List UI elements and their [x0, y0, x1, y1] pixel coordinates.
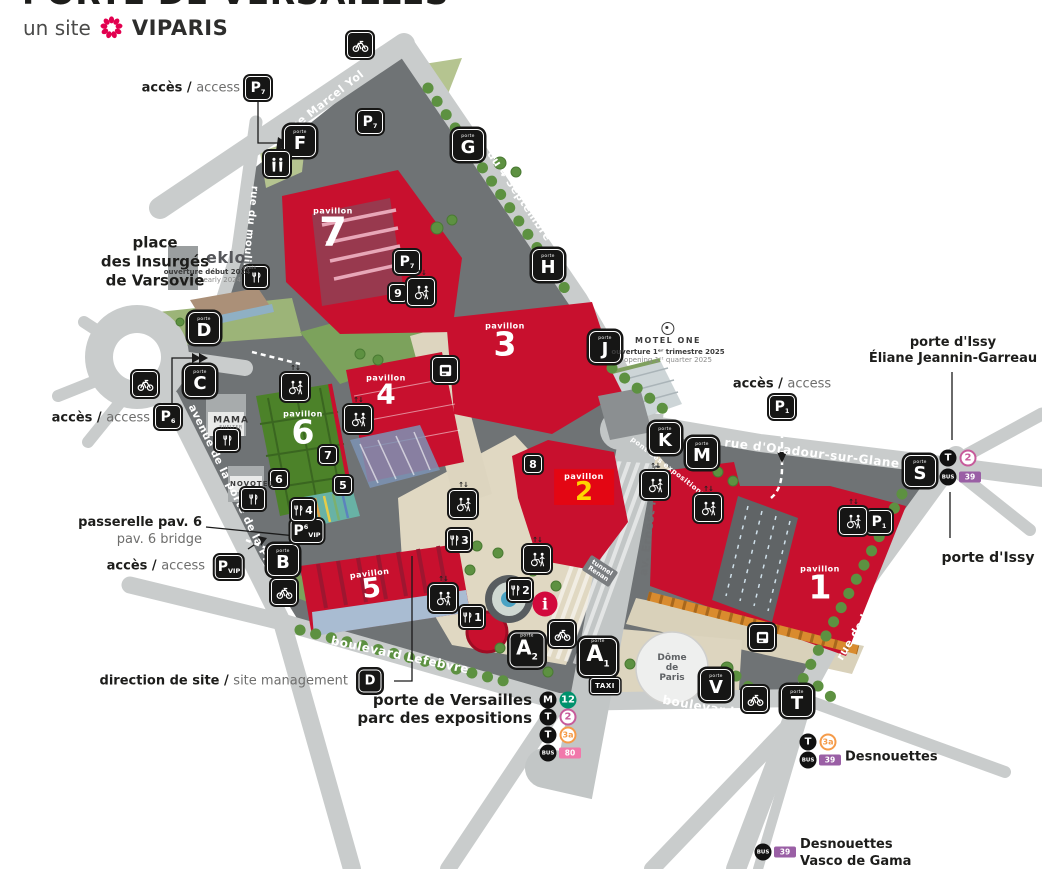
bike-icon	[352, 37, 369, 54]
gate-letter: A	[516, 636, 531, 660]
site-prefix-label: un site	[23, 16, 91, 40]
tram-mode-icon[interactable]: T	[800, 734, 817, 751]
viparis-flower-icon	[98, 14, 125, 41]
parking-sub: 6	[171, 417, 176, 425]
restaurant-4-badge[interactable]: 4	[291, 499, 315, 521]
restaurant-number: 3	[461, 534, 469, 547]
pavilion-number: 1	[800, 573, 840, 601]
direction-bold: direction de site /	[100, 674, 229, 689]
hotel-subname: SHELTER	[213, 426, 249, 431]
site-management-label: direction de site / site management	[100, 674, 348, 689]
wheelchair-person-icon	[529, 551, 546, 568]
pedestrians-icon	[269, 156, 286, 173]
parking-sub: 7	[410, 262, 415, 270]
bus-mode-icon[interactable]: BUS	[800, 752, 817, 769]
hotel-name: MOTEL ONE	[611, 336, 724, 345]
station-line1: porte d'Issy	[869, 335, 1037, 351]
mama-shelter-label: MAMA SHELTER	[213, 416, 249, 431]
elevator-icon: ↑↓	[523, 545, 551, 573]
opening-en: opening 1ˢᵗ quarter 2025	[611, 356, 724, 364]
pavilion-number: 5	[350, 576, 392, 604]
annex-8-badge[interactable]: 8	[524, 455, 542, 473]
elevator-icon: ↑↓	[449, 490, 477, 518]
atm-icon	[749, 624, 775, 650]
gate-letter: S	[914, 466, 927, 482]
tram-mode-icon[interactable]: T	[940, 450, 957, 467]
parking-letter: P	[218, 559, 228, 575]
parking-sub: 7	[261, 88, 266, 96]
fork-knife-icon	[293, 504, 304, 517]
direction-regular: site management	[233, 674, 348, 689]
station-line2: Éliane Jeannin-Garreau	[869, 351, 1037, 367]
access-label-p7: accès / access	[142, 81, 240, 96]
parking-sub: 1	[785, 407, 790, 415]
tram-line-3a-badge[interactable]: 3a	[820, 734, 837, 751]
brand-row: un site VIPARIS	[23, 14, 228, 41]
pavilion-number: 7	[313, 216, 353, 250]
fork-knife-icon	[449, 534, 460, 547]
gate-letter: F	[294, 136, 306, 152]
restaurant-number: 2	[522, 584, 530, 597]
bus-line-80-badge[interactable]: 80	[559, 748, 581, 759]
gate-letter-sub: 1	[603, 660, 609, 670]
gate-letter: G	[461, 140, 476, 156]
wheelchair-person-icon	[455, 496, 472, 513]
motel-one-label: MOTEL ONE ouverture 1ᵉʳ trimestre 2025 o…	[611, 322, 724, 364]
elevator-icon: ↑↓	[281, 373, 309, 401]
access-label-p6: accès / access	[52, 411, 150, 426]
dome-de-paris-label: Dôme de Paris	[657, 653, 686, 683]
annex-9-badge[interactable]: 9	[389, 284, 407, 302]
gate-letter: H	[540, 260, 555, 276]
restaurant-novotel-badge[interactable]	[241, 488, 265, 510]
cash-machine-icon	[437, 362, 454, 379]
pavilion-number: 4	[366, 383, 406, 407]
parking-P6VIP-badge[interactable]: P6VIP	[290, 519, 323, 543]
opening-fr: ouverture 1ᵉʳ trimestre 2025	[611, 348, 724, 356]
bike-parking-icon	[742, 686, 768, 712]
access-regular: access	[161, 559, 205, 574]
bus-line-39-badge[interactable]: 39	[774, 847, 796, 858]
passerelle-label: passerelle pav. 6 pav. 6 bridge	[78, 514, 202, 548]
hotel-name: MAMA	[213, 416, 249, 426]
wheelchair-person-icon	[287, 379, 304, 396]
tram-line-2-badge[interactable]: 2	[560, 709, 577, 726]
gate-letter: D	[197, 323, 212, 339]
taxi-stand-badge[interactable]: TAXI	[590, 678, 620, 694]
page-title: PORTE DE VERSAILLES	[22, 0, 449, 12]
pavilion-7-label: pavillon 7	[313, 207, 353, 250]
tram-mode-icon[interactable]: T	[540, 727, 557, 744]
gate-letter: M	[693, 448, 711, 464]
bike-parking-icon	[132, 371, 158, 397]
porte-de-versailles-map: PORTE DE VERSAILLES un site VIPARIS rue …	[0, 0, 1042, 869]
gate-letter: J	[602, 342, 609, 358]
parking-sub: 7	[373, 122, 378, 130]
elevator-icon: ↑↓	[641, 471, 669, 499]
pavilion-3-label: pavillon 3	[485, 321, 525, 358]
cash-machine-icon	[754, 629, 771, 646]
desnouettes-station-label: Desnouettes	[845, 750, 938, 765]
dome-line3: Paris	[657, 673, 686, 683]
parking-letter: P	[293, 523, 303, 539]
access-bold: accès /	[733, 377, 783, 392]
parking-P1-pavilion-badge[interactable]: P1	[866, 510, 892, 534]
parking-letter: P	[161, 409, 171, 425]
wheelchair-person-icon	[350, 411, 367, 428]
pavilion-5-label: pavillon 5	[349, 567, 392, 604]
wheelchair-person-icon	[435, 590, 452, 607]
gate-letter: C	[193, 376, 206, 392]
pavilion-number: 2	[564, 481, 604, 503]
dome-line2: de	[657, 663, 686, 673]
tram-line-2-badge[interactable]: 2	[960, 450, 977, 467]
porte-d-issy-station-label: porte d'Issy Éliane Jeannin-Garreau	[869, 335, 1037, 367]
gate-letter: T	[791, 696, 803, 712]
restaurant-2-badge[interactable]: 2	[508, 579, 532, 601]
passerelle-line1: passerelle pav. 6	[78, 514, 202, 531]
pedestrian-access-icon	[264, 151, 290, 177]
station-line1: porte de Versailles	[357, 691, 532, 709]
parking-P7-lot-badge[interactable]: P7	[357, 110, 383, 134]
station-line2: parc des expositions	[357, 709, 532, 727]
pavilion-number: 3	[485, 330, 525, 358]
access-regular: access	[196, 81, 240, 96]
bike-parking-icon	[549, 621, 575, 647]
pavilion-4-label: pavillon 4	[366, 374, 406, 407]
fork-knife-icon	[510, 584, 521, 597]
gate-A2[interactable]: porteA2	[510, 633, 545, 668]
parking-letter: P	[872, 514, 882, 530]
gate-M[interactable]: porteM	[686, 437, 718, 469]
parking-P6-badge[interactable]: P6	[155, 405, 181, 429]
access-regular: access	[106, 411, 150, 426]
pavilion-number: 6	[283, 418, 323, 446]
wheelchair-person-icon	[845, 513, 862, 530]
porte-de-versailles-station-label: porte de Versailles parc des expositions	[357, 691, 532, 727]
motel-one-logo-icon	[661, 322, 674, 335]
access-label-pvip: accès / access	[107, 559, 205, 574]
gate-V[interactable]: porteV	[700, 669, 732, 701]
fork-knife-icon	[248, 493, 259, 506]
place-line3: de Varsovie	[101, 272, 209, 291]
annex-5-badge[interactable]: 5	[334, 476, 352, 494]
information-point-badge[interactable]: i	[533, 592, 558, 617]
gate-S[interactable]: porteS	[904, 455, 936, 487]
restaurant-number: 4	[305, 504, 313, 517]
vasco-de-gama-station-label: Desnouettes Vasco de Gama	[800, 836, 911, 869]
elevator-icon: ↑↓	[694, 494, 722, 522]
station-line2: Vasco de Gama	[800, 853, 911, 869]
gate-letter: A	[586, 642, 603, 667]
parking-sub: 1	[882, 522, 887, 530]
parking-sup: 6	[304, 523, 309, 531]
restaurant-number: 1	[474, 611, 482, 624]
parking-letter: P	[775, 399, 785, 415]
wheelchair-person-icon	[700, 500, 717, 517]
elevator-icon: ↑↓	[839, 507, 867, 535]
bike-icon	[276, 584, 293, 601]
access-bold: accès /	[52, 411, 102, 426]
gate-H[interactable]: porteH	[532, 249, 564, 281]
bus-line-39-badge[interactable]: 39	[959, 472, 981, 483]
restaurant-mama-badge[interactable]	[215, 429, 239, 451]
passerelle-line2: pav. 6 bridge	[78, 531, 202, 548]
place-insurges-label: place des Insurgés de Varsovie	[101, 234, 209, 291]
fork-knife-icon	[251, 271, 262, 284]
novotel-label: NOVOTEL	[230, 480, 274, 488]
elevator-icon: ↑↓	[407, 278, 435, 306]
station-line1: Desnouettes	[800, 836, 911, 853]
place-line2: des Insurgés	[101, 253, 209, 272]
gate-K[interactable]: porteK	[649, 422, 681, 454]
wheelchair-person-icon	[647, 477, 664, 494]
gate-letter: D	[365, 675, 376, 688]
bus-mode-icon[interactable]: BUS	[540, 745, 557, 762]
porte-d-issy-bottom-label: porte d'Issy	[942, 550, 1035, 566]
fork-knife-icon	[222, 434, 233, 447]
parking-P7-access-badge[interactable]: P7	[245, 76, 271, 100]
parking-letter: P	[400, 254, 410, 270]
access-bold: accès /	[142, 81, 192, 96]
annex-7-badge[interactable]: 7	[319, 446, 337, 464]
bike-parking-icon	[271, 579, 297, 605]
access-label-p1: accès / access	[733, 377, 831, 392]
fork-knife-icon	[462, 611, 473, 624]
elevator-icon: ↑↓	[429, 584, 457, 612]
bus-mode-icon[interactable]: BUS	[940, 469, 957, 486]
access-bold: accès /	[107, 559, 157, 574]
bike-icon	[747, 691, 764, 708]
restaurant-3-badge[interactable]: 3	[447, 529, 471, 551]
bike-parking-icon	[347, 32, 373, 58]
parking-letter: P	[363, 114, 373, 130]
gate-letter: K	[658, 433, 672, 449]
gate-C[interactable]: porteC	[184, 365, 216, 397]
gate-B[interactable]: porteB	[267, 544, 299, 576]
tram-line-3a-badge[interactable]: 3a	[560, 727, 577, 744]
gate-letter-sub: 2	[532, 653, 538, 663]
gate-D-direction-badge[interactable]: D	[359, 670, 382, 693]
gate-A1[interactable]: porteA1	[579, 638, 617, 676]
parking-sub: VIP	[228, 567, 240, 575]
bike-icon	[137, 376, 154, 393]
parking-sub: VIP	[308, 531, 320, 539]
bus-mode-icon[interactable]: BUS	[755, 844, 772, 861]
bus-line-39-badge[interactable]: 39	[819, 755, 841, 766]
gate-letter: B	[276, 555, 290, 571]
place-line1: place	[101, 234, 209, 253]
brand-name: VIPARIS	[132, 16, 228, 40]
parking-letter: P	[251, 80, 261, 96]
wheelchair-person-icon	[413, 284, 430, 301]
pavilion-1-label: pavillon 1	[800, 564, 840, 601]
dome-line1: Dôme	[657, 653, 686, 663]
pavilion-2-label: pavillon 2	[554, 469, 614, 505]
parking-P1-access-badge[interactable]: P1	[769, 395, 795, 419]
gate-D[interactable]: porteD	[188, 312, 220, 344]
tram-mode-icon[interactable]: T	[540, 709, 557, 726]
metro-mode-icon[interactable]: M	[540, 692, 557, 709]
pavilion-6-label: pavillon 6	[283, 409, 323, 446]
gate-G[interactable]: porteG	[452, 129, 484, 161]
bike-icon	[554, 626, 571, 643]
restaurant-1-badge[interactable]: 1	[460, 606, 484, 628]
atm-icon	[432, 357, 458, 383]
gate-letter: V	[709, 680, 723, 696]
gate-T[interactable]: porteT	[781, 685, 813, 717]
map-background	[0, 0, 1042, 869]
access-regular: access	[787, 377, 831, 392]
elevator-icon: ↑↓	[344, 405, 372, 433]
metro-line-12-badge[interactable]: 12	[560, 692, 577, 709]
parking-PVIP-badge[interactable]: PVIP	[215, 555, 243, 579]
